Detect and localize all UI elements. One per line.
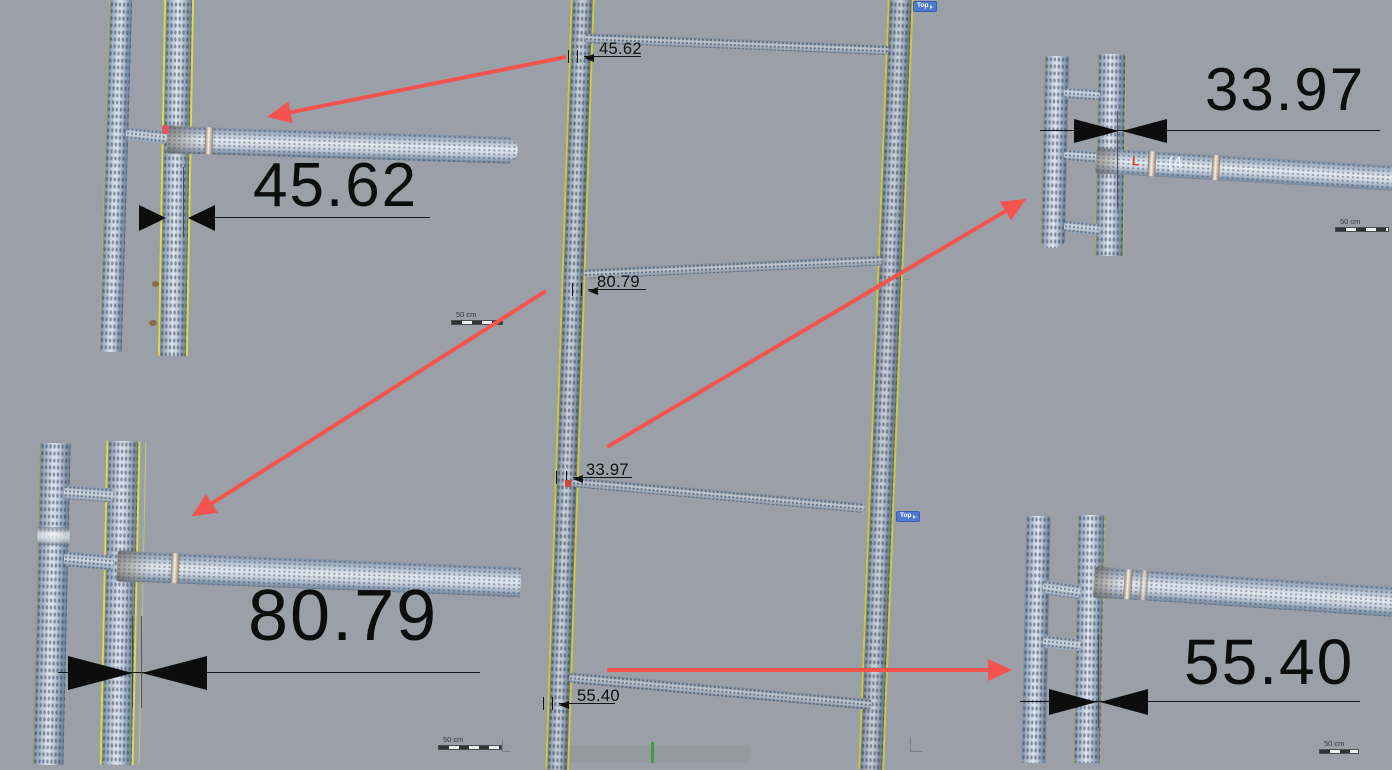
- measure-tick: [552, 697, 553, 710]
- guide-line: [139, 441, 147, 765]
- dimension-arrowhead-left: [1100, 689, 1148, 715]
- measure-tick: [556, 471, 557, 484]
- ladder-rung: [572, 477, 866, 513]
- rust-spot: [149, 320, 157, 326]
- dimension-label: 55.40: [577, 688, 620, 705]
- dimension-label: 45.62: [599, 41, 642, 58]
- weld-seam: [170, 553, 179, 583]
- dimension-arrowhead-left: [1122, 119, 1167, 143]
- dimension-arrowhead-left: [188, 205, 215, 231]
- callout-arrow: [601, 189, 1031, 456]
- weld-seam: [1211, 155, 1220, 180]
- vertical-axis-line: [651, 742, 654, 763]
- arrowhead-icon: [1000, 189, 1032, 220]
- arrowhead-icon: [988, 659, 1012, 681]
- badge-label: Top: [900, 513, 911, 520]
- dimension-arrowhead-right: [139, 205, 166, 231]
- dimension-arrowhead-left: [584, 54, 594, 62]
- bottom-panel: [563, 745, 749, 763]
- dimension-label: 33.97: [1205, 60, 1365, 120]
- measure-tick: [577, 50, 578, 63]
- dimension-arrowhead-left: [573, 475, 583, 483]
- dimension-label: 80.79: [248, 580, 438, 652]
- arrow-shaft: [288, 55, 566, 115]
- chevron-right-icon: [913, 515, 916, 519]
- measure-tick: [543, 697, 544, 710]
- weld-seam: [1123, 569, 1133, 599]
- dimension-label: 55.40: [1184, 630, 1354, 694]
- dimension-extension-line: [1098, 634, 1099, 728]
- axis-corner-icon: [502, 740, 511, 752]
- dimension-label: 45.62: [253, 155, 418, 217]
- badge-label: Top: [917, 3, 928, 10]
- weld-seam: [1147, 151, 1156, 176]
- inset-br-crossbar-pipe: [1093, 567, 1392, 617]
- inset-tr-rung: [1064, 149, 1101, 162]
- inset-tr-rung: [1064, 87, 1101, 100]
- center-right-vertical-pipe: [858, 0, 914, 770]
- red-paint-mark: L: [1132, 155, 1140, 167]
- arrowhead-icon: [265, 102, 293, 128]
- pipe-joint: [167, 125, 202, 155]
- axis-corner-icon: [910, 737, 922, 752]
- arrowhead-icon: [186, 494, 218, 525]
- callout-arrow: [265, 46, 568, 128]
- pipe-joint: [116, 550, 151, 583]
- red-point-marker: [162, 125, 169, 134]
- pipe-joint: [1093, 566, 1123, 600]
- scale-bar: 50 cm: [438, 736, 502, 750]
- measure-tick: [572, 283, 573, 296]
- view-orientation-badge[interactable]: Top: [896, 511, 920, 522]
- dimension-arrowhead-right: [68, 656, 133, 690]
- scale-bar: 50 cm: [1335, 218, 1389, 232]
- pipe-paint-mark: (4: [1168, 155, 1183, 171]
- weld-seam: [205, 127, 214, 154]
- dimension-label: 80.79: [597, 274, 640, 291]
- scale-bar-label: 50 cm: [1319, 740, 1359, 748]
- dimension-arrowhead-right: [1049, 689, 1097, 715]
- scale-bar-rule: [451, 320, 503, 325]
- red-point-marker: [565, 480, 571, 487]
- inset-tr-rung: [1063, 220, 1100, 236]
- scale-bar-rule: [1319, 749, 1359, 754]
- weld-seam: [1139, 570, 1149, 600]
- scale-bar-rule: [438, 745, 502, 750]
- inset-tl-outer-pipe: [99, 0, 133, 352]
- arrow-shaft: [606, 208, 1009, 449]
- scale-bar-rule: [1335, 227, 1389, 232]
- dimension-arrowhead-left: [142, 656, 207, 690]
- callout-arrow: [607, 659, 1012, 681]
- dimension-extension-line: [183, 167, 184, 237]
- view-orientation-badge[interactable]: Top: [913, 1, 937, 12]
- scale-bar-label: 50 cm: [451, 311, 503, 319]
- scene: 45.62 80.79 33.97 55.40 50 cm 50 cm Top …: [0, 0, 1392, 763]
- scale-bar: 50 cm: [1319, 740, 1359, 754]
- scale-bar: 50 cm: [451, 311, 503, 325]
- dimension-arrowhead-right: [1074, 119, 1119, 143]
- scale-bar-label: 50 cm: [1335, 218, 1389, 226]
- dimension-arrowhead-left: [559, 701, 569, 709]
- measure-tick: [581, 283, 582, 296]
- arrow-shaft: [607, 668, 990, 673]
- inset-tr-crossbar-pipe: L (4: [1095, 148, 1392, 191]
- center-left-vertical-pipe: [545, 0, 595, 770]
- scale-bar-label: 50 cm: [438, 736, 502, 744]
- rust-spot: [152, 281, 159, 287]
- pipe-joint: [1095, 147, 1123, 175]
- pipe-sleeve: [37, 527, 69, 546]
- dimension-label: 33.97: [586, 462, 629, 479]
- inset-bl-rung: [63, 551, 114, 570]
- measure-tick: [568, 50, 569, 63]
- chevron-right-icon: [930, 5, 933, 9]
- inset-bl-rung: [64, 485, 115, 502]
- inset-br-rung: [1042, 635, 1081, 652]
- inset-tl-measured-pipe: [158, 0, 194, 356]
